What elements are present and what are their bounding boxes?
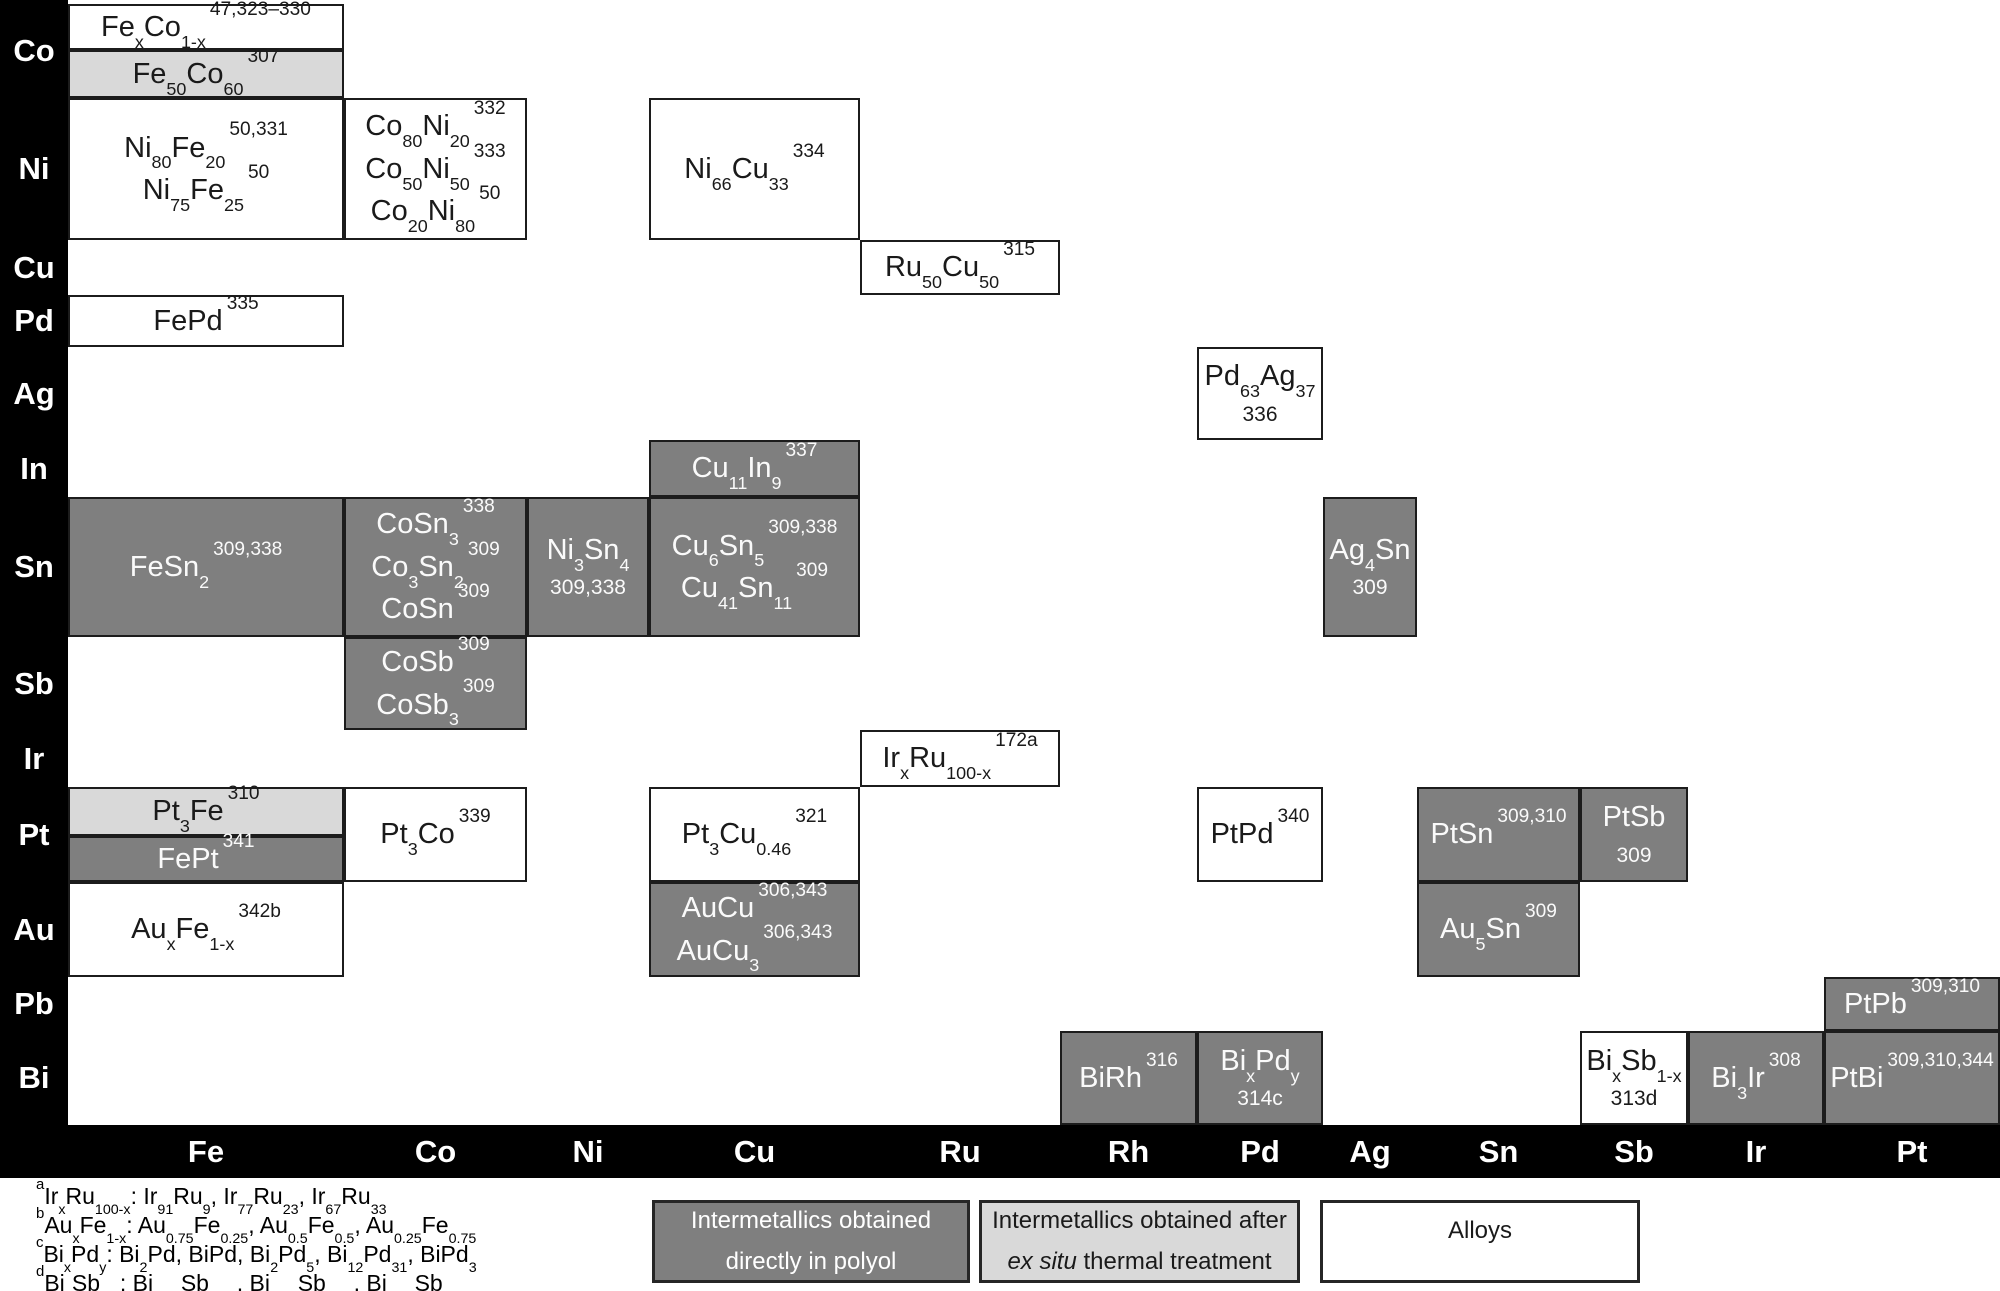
- row-label-In: In: [20, 451, 48, 487]
- matrix-cell-Pd-Bi: BixPdy314c: [1197, 1031, 1323, 1125]
- cell-formula: FePt341: [157, 844, 254, 874]
- matrix-cell-Co-Ni: Co80Ni20332Co50Ni50333Co20Ni8050: [344, 98, 527, 240]
- cell-formula: AuCu3306,343: [677, 936, 833, 966]
- matrix-cell-Co-Sn: CoSn3338Co3Sn2309CoSn309: [344, 497, 527, 637]
- row-label-Ni: Ni: [19, 151, 50, 187]
- matrix-cell-Sn-Au: Au5Sn309: [1417, 882, 1580, 977]
- legend-label: Alloys: [1448, 1217, 1512, 1246]
- cell-formula: Ru50Cu50315: [885, 252, 1035, 282]
- cell-formula: CoSb309: [381, 647, 489, 677]
- legend-label: Intermetallics obtained: [691, 1207, 931, 1236]
- cell-formula: PtSn309,310: [1430, 819, 1566, 849]
- cell-formula: IrxRu100-x172a: [882, 743, 1037, 773]
- row-label-Sb: Sb: [14, 666, 54, 702]
- column-label-Rh: Rh: [1108, 1134, 1149, 1170]
- cell-formula: BixPdy: [1220, 1046, 1299, 1076]
- cell-formula: Au5Sn309: [1440, 914, 1557, 944]
- cell-formula: Ni3Sn4: [547, 535, 630, 565]
- matrix-cell-Fe-Au: AuxFe1-x342b: [68, 882, 344, 977]
- cell-reference: 309: [1616, 845, 1651, 867]
- cell-formula: Fe50Co60307: [133, 59, 280, 89]
- matrix-cell-Ag-Sn: Ag4Sn309: [1323, 497, 1417, 637]
- column-label-Ru: Ru: [939, 1134, 980, 1170]
- column-label-Sb: Sb: [1614, 1134, 1654, 1170]
- cell-reference: 314c: [1237, 1088, 1283, 1110]
- footnote-a: aIrxRu100-x: Ir91Ru9, Ir77Ru23, Ir67Ru33: [36, 1182, 477, 1211]
- cell-reference: 313d: [1611, 1088, 1658, 1110]
- matrix-cell-Ni-Sn: Ni3Sn4309,338: [527, 497, 649, 637]
- column-label-Pt: Pt: [1897, 1134, 1928, 1170]
- row-label-Bi: Bi: [19, 1060, 50, 1096]
- cell-formula: PtPd340: [1211, 819, 1310, 849]
- row-label-Sn: Sn: [14, 549, 54, 585]
- cell-formula: PtBi309,310,344: [1830, 1063, 1994, 1093]
- column-label-Ir: Ir: [1746, 1134, 1767, 1170]
- matrix-cell-Ir-Bi: Bi3Ir308: [1688, 1031, 1824, 1125]
- cell-formula: FeSn2309,338: [130, 552, 282, 582]
- matrix-cell-Pd-Ag: Pd63Ag37336: [1197, 347, 1323, 440]
- intermetallics-matrix-figure: FexCo1-x47,323–330Fe50Co60307Ni80Fe2050,…: [0, 0, 2000, 1291]
- row-label-Pb: Pb: [14, 986, 54, 1022]
- cell-formula: Co50Ni50333: [365, 154, 505, 184]
- legend-item-dark: Intermetallics obtaineddirectly in polyo…: [652, 1200, 970, 1283]
- matrix-cell-Pt-Bi: PtBi309,310,344: [1824, 1031, 2000, 1125]
- matrix-cell-Sb-Bi: BixSb1-x313d: [1580, 1031, 1688, 1125]
- cell-formula: Cu41Sn11309: [681, 573, 828, 603]
- cell-formula: Pd63Ag37: [1205, 361, 1316, 391]
- cell-reference: 336: [1242, 404, 1277, 426]
- matrix-cell-Cu-Ni: Ni66Cu33334: [649, 98, 860, 240]
- matrix-cell-Fe-Pt: Pt3Fe310: [68, 787, 344, 836]
- cell-formula: Ni75Fe2550: [143, 175, 270, 205]
- matrix-cell-Pd-Pt: PtPd340: [1197, 787, 1323, 882]
- matrix-cell-Co-Pt: Pt3Co339: [344, 787, 527, 882]
- matrix-cell-Fe-Pd: FePd335: [68, 295, 344, 347]
- legend-label: directly in polyol: [726, 1248, 897, 1277]
- matrix-cell-Fe-Co: FexCo1-x47,323–330: [68, 4, 344, 50]
- row-label-Ag: Ag: [13, 376, 54, 412]
- legend-label: ex situ thermal treatment: [1007, 1248, 1271, 1277]
- cell-formula: CoSn309: [381, 594, 489, 624]
- row-label-Pt: Pt: [19, 817, 50, 853]
- cell-formula: Co3Sn2309: [371, 552, 499, 582]
- column-label-Pd: Pd: [1240, 1134, 1280, 1170]
- matrix-cell-Co-Sb: CoSb309CoSb3309: [344, 637, 527, 730]
- cell-formula: Co20Ni8050: [371, 196, 501, 226]
- cell-formula: PtSb: [1603, 802, 1666, 832]
- matrix-cell-Fe-Pt: FePt341: [68, 836, 344, 882]
- column-label-Cu: Cu: [734, 1134, 775, 1170]
- cell-formula: BiRh316: [1079, 1063, 1178, 1093]
- matrix-cell-Pt-Pb: PtPb309,310: [1824, 977, 2000, 1031]
- footnotes: aIrxRu100-x: Ir91Ru9, Ir77Ru23, Ir67Ru33…: [36, 1182, 477, 1291]
- cell-formula: CoSb3309: [376, 690, 494, 720]
- cell-formula: PtPb309,310: [1844, 989, 1980, 1019]
- column-label-Fe: Fe: [188, 1134, 224, 1170]
- row-label-Co: Co: [13, 33, 54, 69]
- matrix-cell-Ru-Ir: IrxRu100-x172a: [860, 730, 1060, 787]
- matrix-cell-Fe-Ni: Ni80Fe2050,331Ni75Fe2550: [68, 98, 344, 240]
- cell-reference: 309,338: [550, 577, 626, 599]
- matrix-cell-Rh-Bi: BiRh316: [1060, 1031, 1197, 1125]
- cell-formula: Pt3Co339: [380, 819, 490, 849]
- cell-formula: Pt3Fe310: [152, 796, 259, 826]
- matrix-cell-Sn-Pt: PtSn309,310: [1417, 787, 1580, 882]
- row-label-Au: Au: [13, 912, 54, 948]
- row-label-Cu: Cu: [13, 250, 54, 286]
- column-label-Ni: Ni: [573, 1134, 604, 1170]
- column-label-Ag: Ag: [1349, 1134, 1390, 1170]
- cell-formula: Co80Ni20332: [365, 111, 505, 141]
- cell-formula: BixSb1-x: [1586, 1046, 1681, 1076]
- legend-label: Intermetallics obtained after: [992, 1207, 1287, 1236]
- matrix-cell-Cu-Au: AuCu306,343AuCu3306,343: [649, 882, 860, 977]
- cell-formula: Pt3Cu0.46321: [682, 819, 827, 849]
- column-axis-bar: [0, 1125, 2000, 1178]
- matrix-cell-Ru-Cu: Ru50Cu50315: [860, 240, 1060, 295]
- cell-formula: Ni66Cu33334: [684, 154, 824, 184]
- matrix-cell-Sb-Pt: PtSb309: [1580, 787, 1688, 882]
- cell-formula: AuCu306,343: [682, 893, 828, 923]
- row-label-Pd: Pd: [14, 303, 54, 339]
- legend-item-light: Intermetallics obtained afterex situ the…: [979, 1200, 1300, 1283]
- matrix-cell-Fe-Sn: FeSn2309,338: [68, 497, 344, 637]
- matrix-cell-Fe-Co: Fe50Co60307: [68, 50, 344, 98]
- matrix-cell-Cu-In: Cu11In9337: [649, 440, 860, 497]
- cell-reference: 309: [1352, 577, 1387, 599]
- legend-item-white: Alloys: [1320, 1200, 1640, 1283]
- matrix-cell-Cu-Pt: Pt3Cu0.46321: [649, 787, 860, 882]
- cell-formula: Bi3Ir308: [1711, 1063, 1800, 1093]
- column-label-Co: Co: [415, 1134, 456, 1170]
- cell-formula: FexCo1-x47,323–330: [101, 12, 311, 42]
- cell-formula: FePd335: [153, 306, 258, 336]
- row-label-Ir: Ir: [24, 741, 45, 777]
- cell-formula: Cu11In9337: [692, 453, 818, 483]
- matrix-cell-Cu-Sn: Cu6Sn5309,338Cu41Sn11309: [649, 497, 860, 637]
- cell-formula: CoSn3338: [376, 509, 494, 539]
- cell-formula: Cu6Sn5309,338: [672, 531, 838, 561]
- cell-formula: Ag4Sn: [1330, 535, 1411, 565]
- cell-formula: Ni80Fe2050,331: [124, 133, 288, 163]
- cell-formula: AuxFe1-x342b: [131, 914, 281, 944]
- column-label-Sn: Sn: [1479, 1134, 1519, 1170]
